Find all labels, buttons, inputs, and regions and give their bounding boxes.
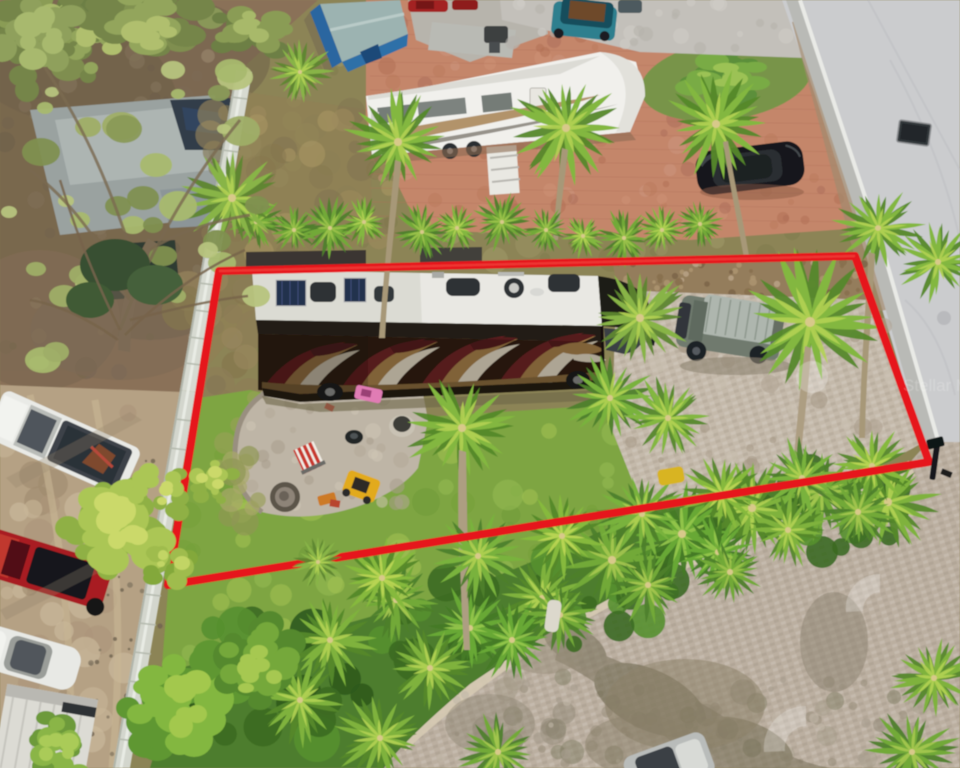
svg-text:Stellar MLS: Stellar MLS	[903, 376, 960, 395]
